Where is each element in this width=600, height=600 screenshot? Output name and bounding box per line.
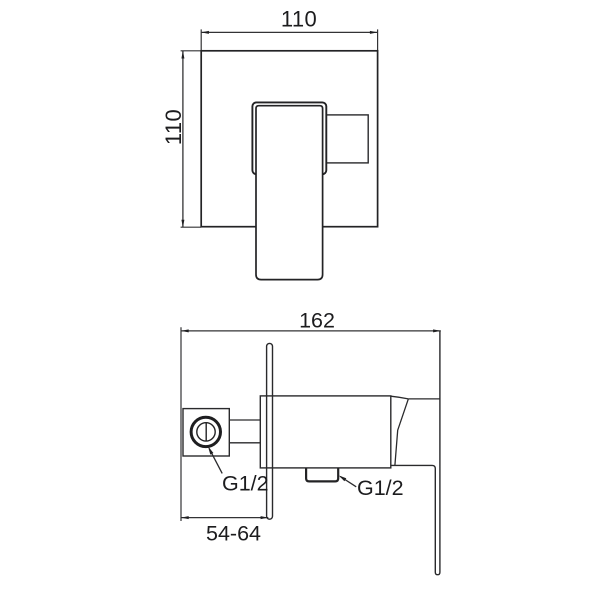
svg-text:110: 110 bbox=[161, 109, 186, 145]
svg-text:G1/2: G1/2 bbox=[357, 476, 404, 500]
svg-text:54-64: 54-64 bbox=[206, 521, 261, 545]
svg-text:162: 162 bbox=[299, 309, 335, 333]
svg-text:110: 110 bbox=[281, 6, 317, 31]
svg-text:G1/2: G1/2 bbox=[222, 472, 269, 496]
